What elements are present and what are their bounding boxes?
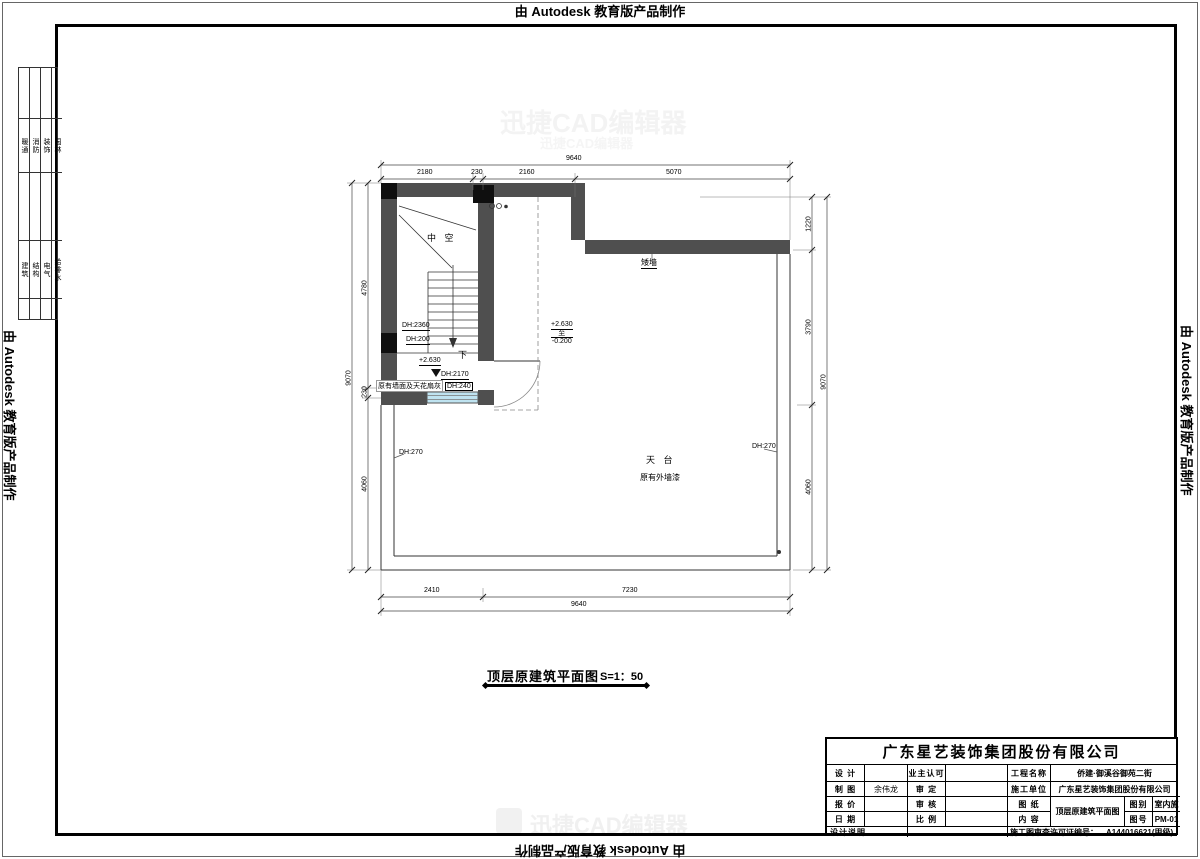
cert-label: 施工图审查许可证编号：: [1010, 827, 1098, 838]
approved-value: [945, 781, 1007, 796]
label-low-wall: 矮墙: [641, 259, 657, 268]
wall-low: [585, 240, 790, 254]
label-terrace-note: 原有外墙漆: [640, 474, 680, 483]
label-wall-note: 原有墙面及天花扇灰: [376, 380, 443, 392]
wall-landing-bottom-right: [478, 390, 494, 405]
dim-left-seg1: 4780: [362, 280, 369, 296]
label-terrace: 天 台: [646, 456, 676, 466]
label-dh240: DH:240: [445, 383, 473, 391]
wall-landing-bottom-left: [381, 390, 427, 405]
dim-right-outer: 9070: [821, 374, 828, 390]
pipe-symbols: [490, 204, 782, 555]
dim-bottom-seg1: 2410: [424, 587, 440, 594]
dim-right-seg2: 3790: [806, 319, 813, 335]
number-value: PM-01: [1152, 811, 1180, 826]
number-label: 图号: [1124, 811, 1152, 826]
category-value: 室内施: [1152, 796, 1180, 811]
dim-bottom-seg2: 7230: [622, 587, 638, 594]
checked-label: 审 核: [907, 796, 945, 811]
level-range-mid: 至: [551, 330, 573, 339]
dim-top-seg2: 230: [471, 169, 483, 176]
design-notes-empty: [907, 826, 1007, 837]
leader-lines: [394, 254, 777, 458]
date-value: [864, 811, 907, 826]
approved-label: 审 定: [907, 781, 945, 796]
design-notes-label: 设计说明: [827, 826, 907, 837]
label-dh2170: DH:2170: [441, 371, 469, 379]
builder-label: 施工单位: [1007, 781, 1050, 796]
cad-sheet: 由 Autodesk 教育版产品制作 由 Autodesk 教育版产品制作 由 …: [0, 0, 1200, 859]
label-dh270-right: DH:270: [752, 443, 776, 451]
scale-value: [945, 811, 1007, 826]
wall-jog: [571, 197, 585, 240]
project-name-label: 工程名称: [1007, 764, 1050, 781]
label-dh270-left: DH:270: [399, 449, 423, 457]
category-label: 图别: [1124, 796, 1152, 811]
level-marker-triangle: [431, 369, 441, 377]
label-void: 中 空: [427, 234, 457, 244]
builder-value: 广东星艺装饰集团股份有限公司: [1050, 781, 1178, 796]
window: [427, 392, 478, 403]
scale-label: 比 例: [907, 811, 945, 826]
checked-value: [945, 796, 1007, 811]
date-label: 日 期: [827, 811, 864, 826]
terrace-boundary: [381, 254, 790, 570]
wall-left: [381, 183, 397, 405]
quote-label: 报 价: [827, 796, 864, 811]
title-block-company: 广东星艺装饰集团股份有限公司: [827, 739, 1176, 764]
design-label: 设 计: [827, 764, 864, 781]
label-down: 下: [458, 351, 467, 361]
dim-left-outer: 9070: [346, 370, 353, 386]
door-swing-arc: [494, 361, 540, 407]
dim-right-seg3: 4060: [806, 479, 813, 495]
stair-direction-arrow: [449, 338, 457, 348]
drawing-title-underline: [485, 684, 647, 687]
door: [494, 361, 540, 407]
owner-approval-label: 业主认可: [907, 764, 945, 781]
drawn-by-label: 制 图: [827, 781, 864, 796]
floor-plan-drawing: [0, 0, 1200, 859]
void-dashed-outline: [494, 197, 538, 410]
dim-top-seg3: 2160: [519, 169, 535, 176]
wall-stair-right: [478, 183, 494, 361]
drawing-scale: S=1：50: [600, 668, 643, 684]
drawn-by-value: 余伟龙: [864, 781, 907, 796]
dim-top-total: 9640: [566, 155, 582, 162]
level-range-bottom: -0.200: [551, 338, 573, 346]
drawing-title: 顶层原建筑平面图: [487, 666, 599, 685]
cert-row: 施工图审查许可证编号： A144016621(甲级): [1007, 826, 1180, 837]
dim-right-seg1: 1220: [806, 216, 813, 232]
owner-approval-value: [945, 764, 1007, 781]
cert-value: A144016621(甲级): [1106, 827, 1173, 838]
project-name-value: 侨建·御溪谷御苑二街: [1050, 764, 1178, 781]
design-value: [864, 764, 907, 781]
sheet-content-value: 顶层原建筑平面图: [1050, 796, 1124, 826]
label-level-landing: +2.630: [419, 357, 441, 365]
quote-value: [864, 796, 907, 811]
wall-columns: [381, 183, 494, 353]
dim-bottom-total: 9640: [571, 601, 587, 608]
dim-top-seg1: 2180: [417, 169, 433, 176]
dim-left-seg3: 4060: [362, 476, 369, 492]
sheet-label: 图 纸: [1007, 796, 1050, 811]
content-label: 内 容: [1007, 811, 1050, 826]
label-dh200: DH:200: [406, 336, 430, 344]
dim-top-seg4: 5070: [666, 169, 682, 176]
title-block: 广东星艺装饰集团股份有限公司 设 计 业主认可 工程名称 侨建·御溪谷御苑二街 …: [825, 737, 1178, 835]
label-level-range: +2.630 至 -0.200: [551, 321, 573, 346]
label-dh2360: DH:2360: [402, 322, 430, 330]
level-range-top: +2.630: [551, 321, 573, 330]
dim-left-seg2: 230: [362, 386, 369, 398]
